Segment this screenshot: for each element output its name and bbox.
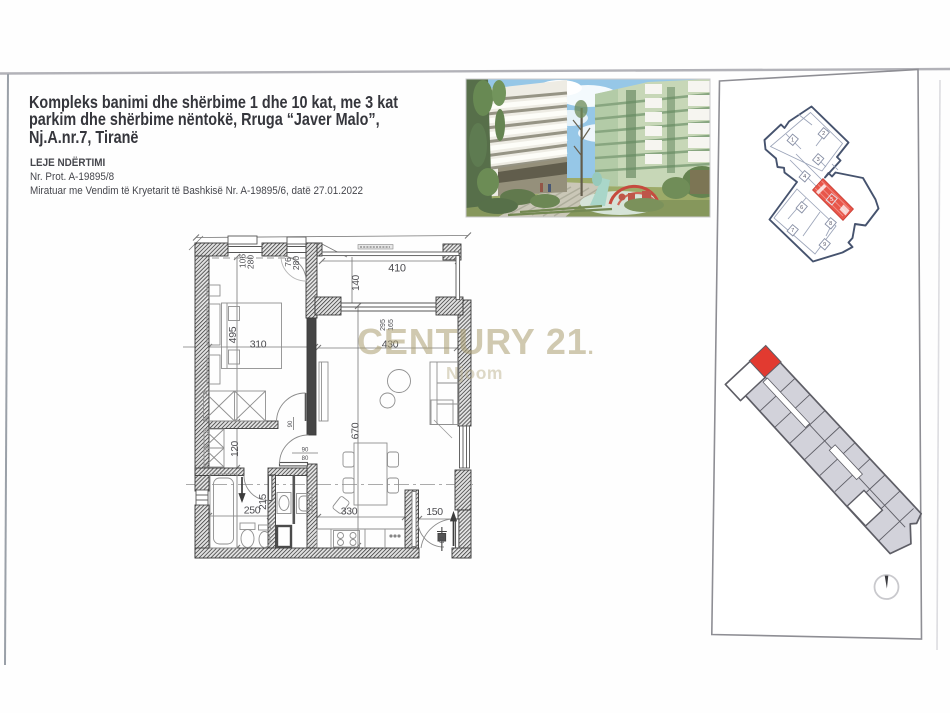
svg-text:9: 9	[823, 242, 826, 248]
svg-text:80: 80	[302, 456, 309, 462]
svg-text:330: 330	[341, 506, 358, 518]
svg-text:90: 90	[288, 420, 294, 427]
svg-text:140: 140	[351, 274, 362, 291]
svg-text:80: 80	[440, 536, 446, 543]
svg-text:6: 6	[800, 205, 803, 211]
svg-text:3: 3	[817, 157, 820, 163]
svg-text:310: 310	[250, 339, 267, 351]
svg-text:150: 150	[426, 506, 443, 518]
svg-text:215: 215	[258, 493, 269, 510]
svg-text:280: 280	[246, 255, 256, 269]
svg-text:120: 120	[230, 440, 241, 457]
svg-text:670: 670	[350, 422, 362, 439]
svg-text:1: 1	[791, 138, 794, 144]
svg-text:7: 7	[791, 228, 794, 234]
svg-text:495: 495	[227, 326, 239, 343]
svg-text:410: 410	[388, 263, 406, 275]
svg-text:4: 4	[803, 174, 806, 180]
svg-text:5: 5	[830, 197, 833, 203]
svg-text:2: 2	[822, 131, 825, 137]
svg-text:280: 280	[291, 256, 301, 270]
svg-text:8: 8	[829, 221, 832, 227]
svg-text:90: 90	[302, 448, 309, 454]
